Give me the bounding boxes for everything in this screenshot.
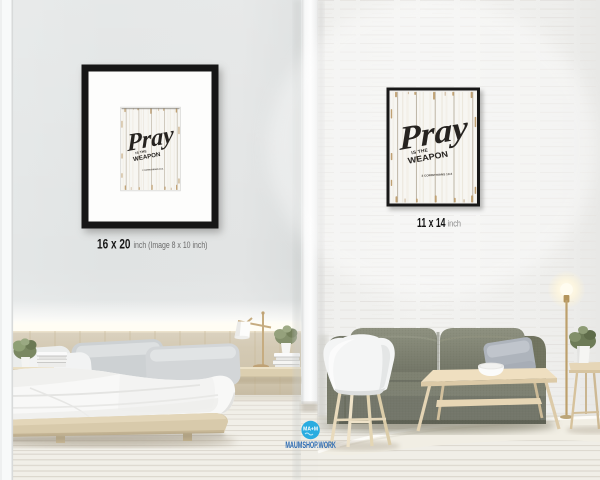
svg-text:MAUMSHOP.WORK: MAUMSHOP.WORK bbox=[285, 440, 336, 451]
svg-text:MA+M: MA+M bbox=[303, 427, 318, 433]
svg-text:16 x 20: 16 x 20 bbox=[97, 237, 131, 252]
svg-text:inch: inch bbox=[448, 219, 462, 229]
svg-text:inch (Image 8 x 10 inch): inch (Image 8 x 10 inch) bbox=[134, 239, 208, 250]
svg-text:11 x 14: 11 x 14 bbox=[417, 215, 446, 230]
